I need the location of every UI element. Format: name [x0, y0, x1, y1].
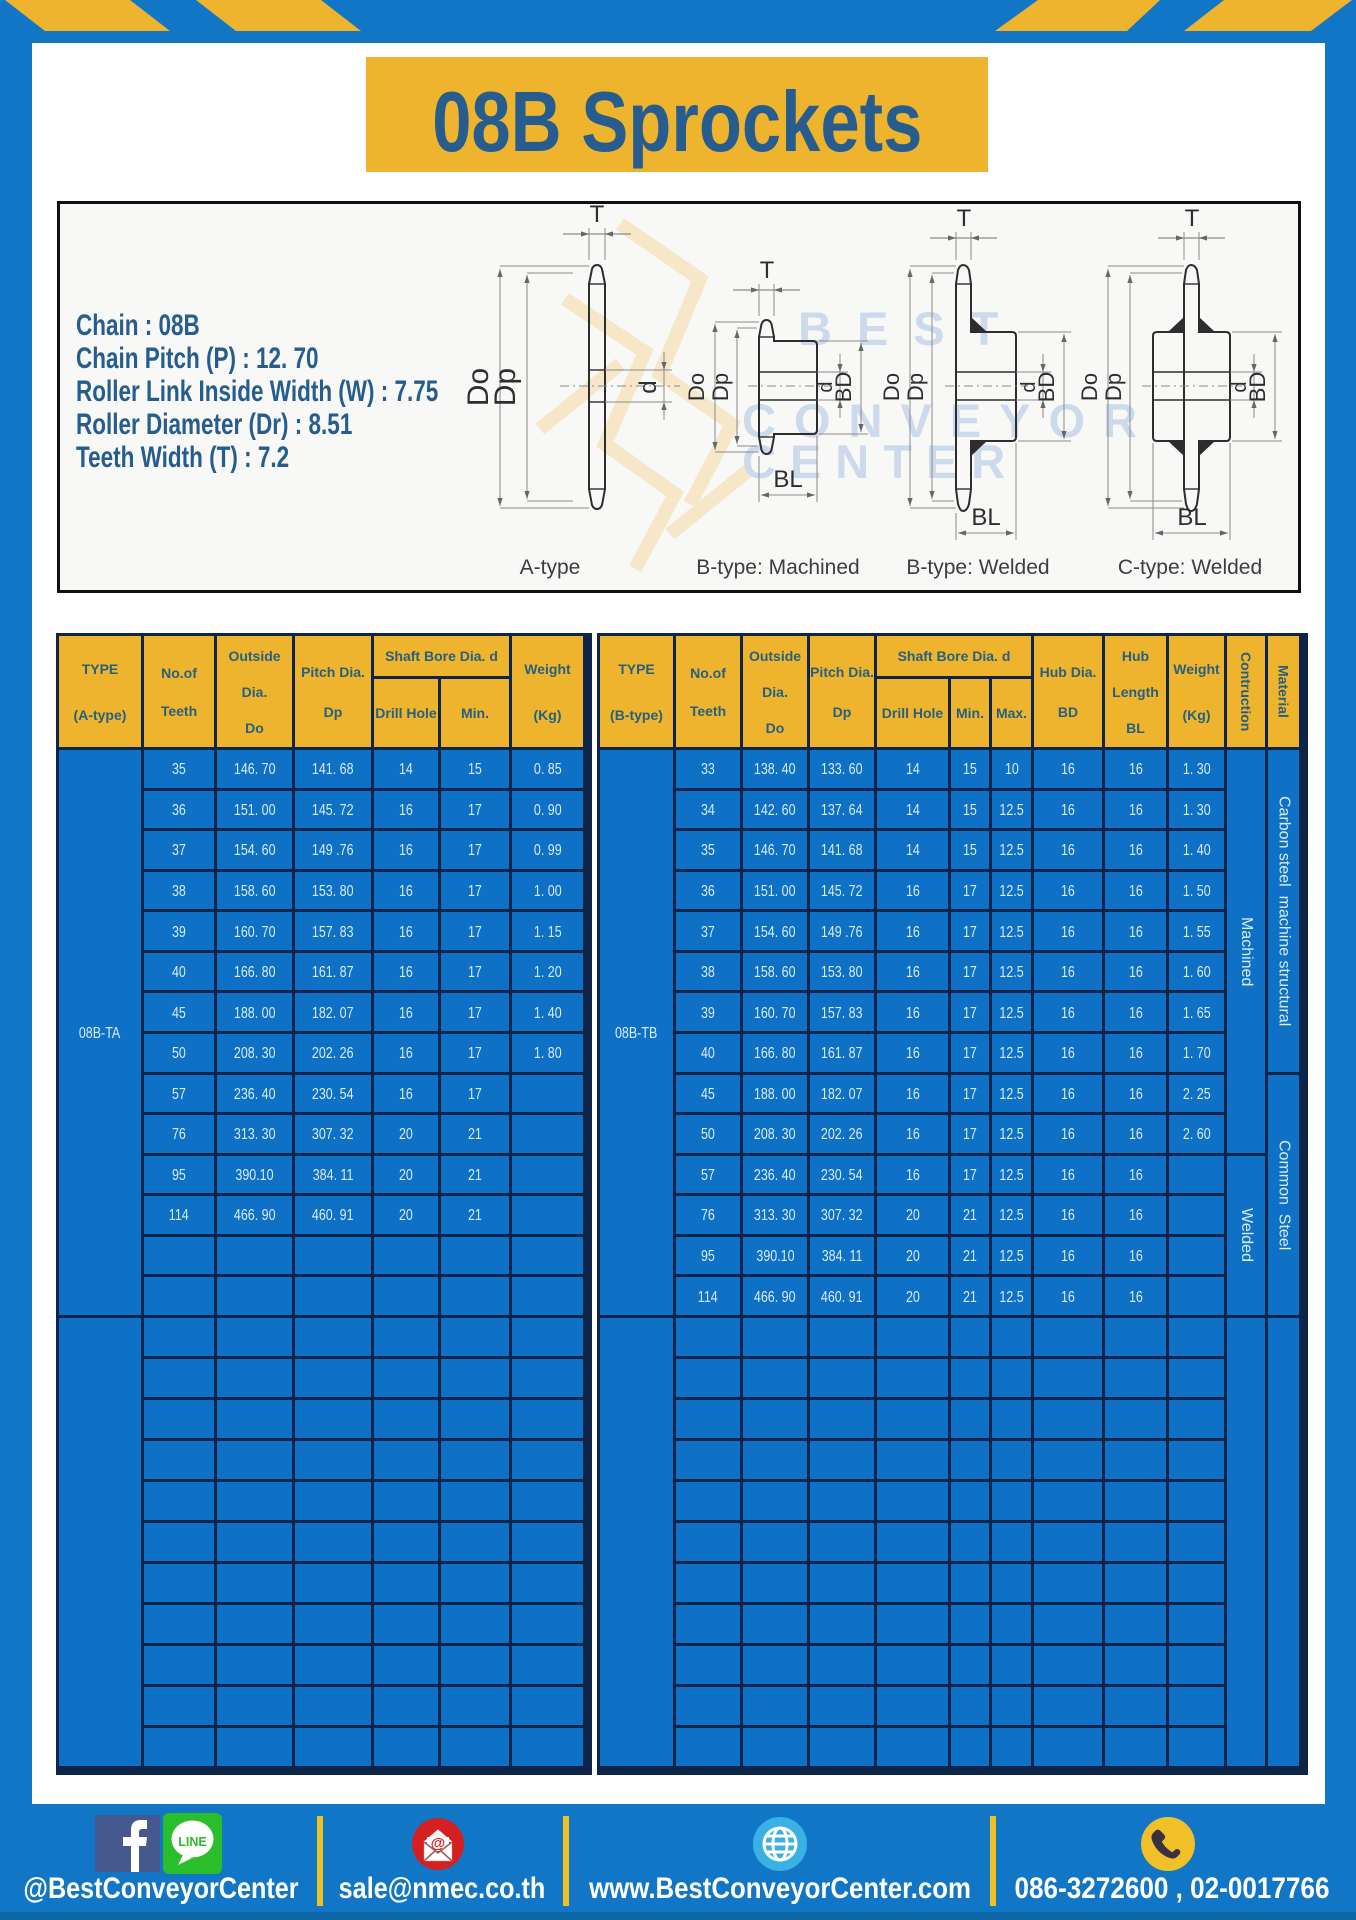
svg-text:Do: Do	[1077, 373, 1102, 401]
svg-text:BL: BL	[971, 504, 1000, 531]
svg-text:T: T	[1185, 205, 1200, 232]
svg-text:BD: BD	[1034, 372, 1059, 403]
svg-text:BEST: BEST	[798, 302, 1023, 355]
svg-text:Dp: Dp	[1101, 373, 1126, 401]
svg-text:C-type: Welded: C-type: Welded	[1118, 556, 1262, 579]
svg-text:d: d	[635, 380, 662, 393]
svg-text:BL: BL	[773, 466, 802, 493]
svg-text:A-type: A-type	[520, 556, 581, 579]
svg-text:T: T	[957, 205, 972, 232]
svg-text:T: T	[590, 204, 605, 228]
svg-text:Do: Do	[684, 373, 709, 401]
svg-text:T: T	[760, 257, 775, 284]
svg-text:BD: BD	[831, 372, 856, 403]
svg-text:Dp: Dp	[708, 373, 733, 401]
svg-text:B-type: Welded: B-type: Welded	[906, 556, 1049, 579]
svg-text:BL: BL	[1177, 504, 1206, 531]
svg-text:BD: BD	[1245, 372, 1270, 403]
svg-text:B-type: Machined: B-type: Machined	[696, 556, 859, 579]
svg-text:Do: Do	[879, 373, 904, 401]
svg-text:LINE: LINE	[178, 1835, 206, 1849]
svg-text:Dp: Dp	[903, 373, 928, 401]
